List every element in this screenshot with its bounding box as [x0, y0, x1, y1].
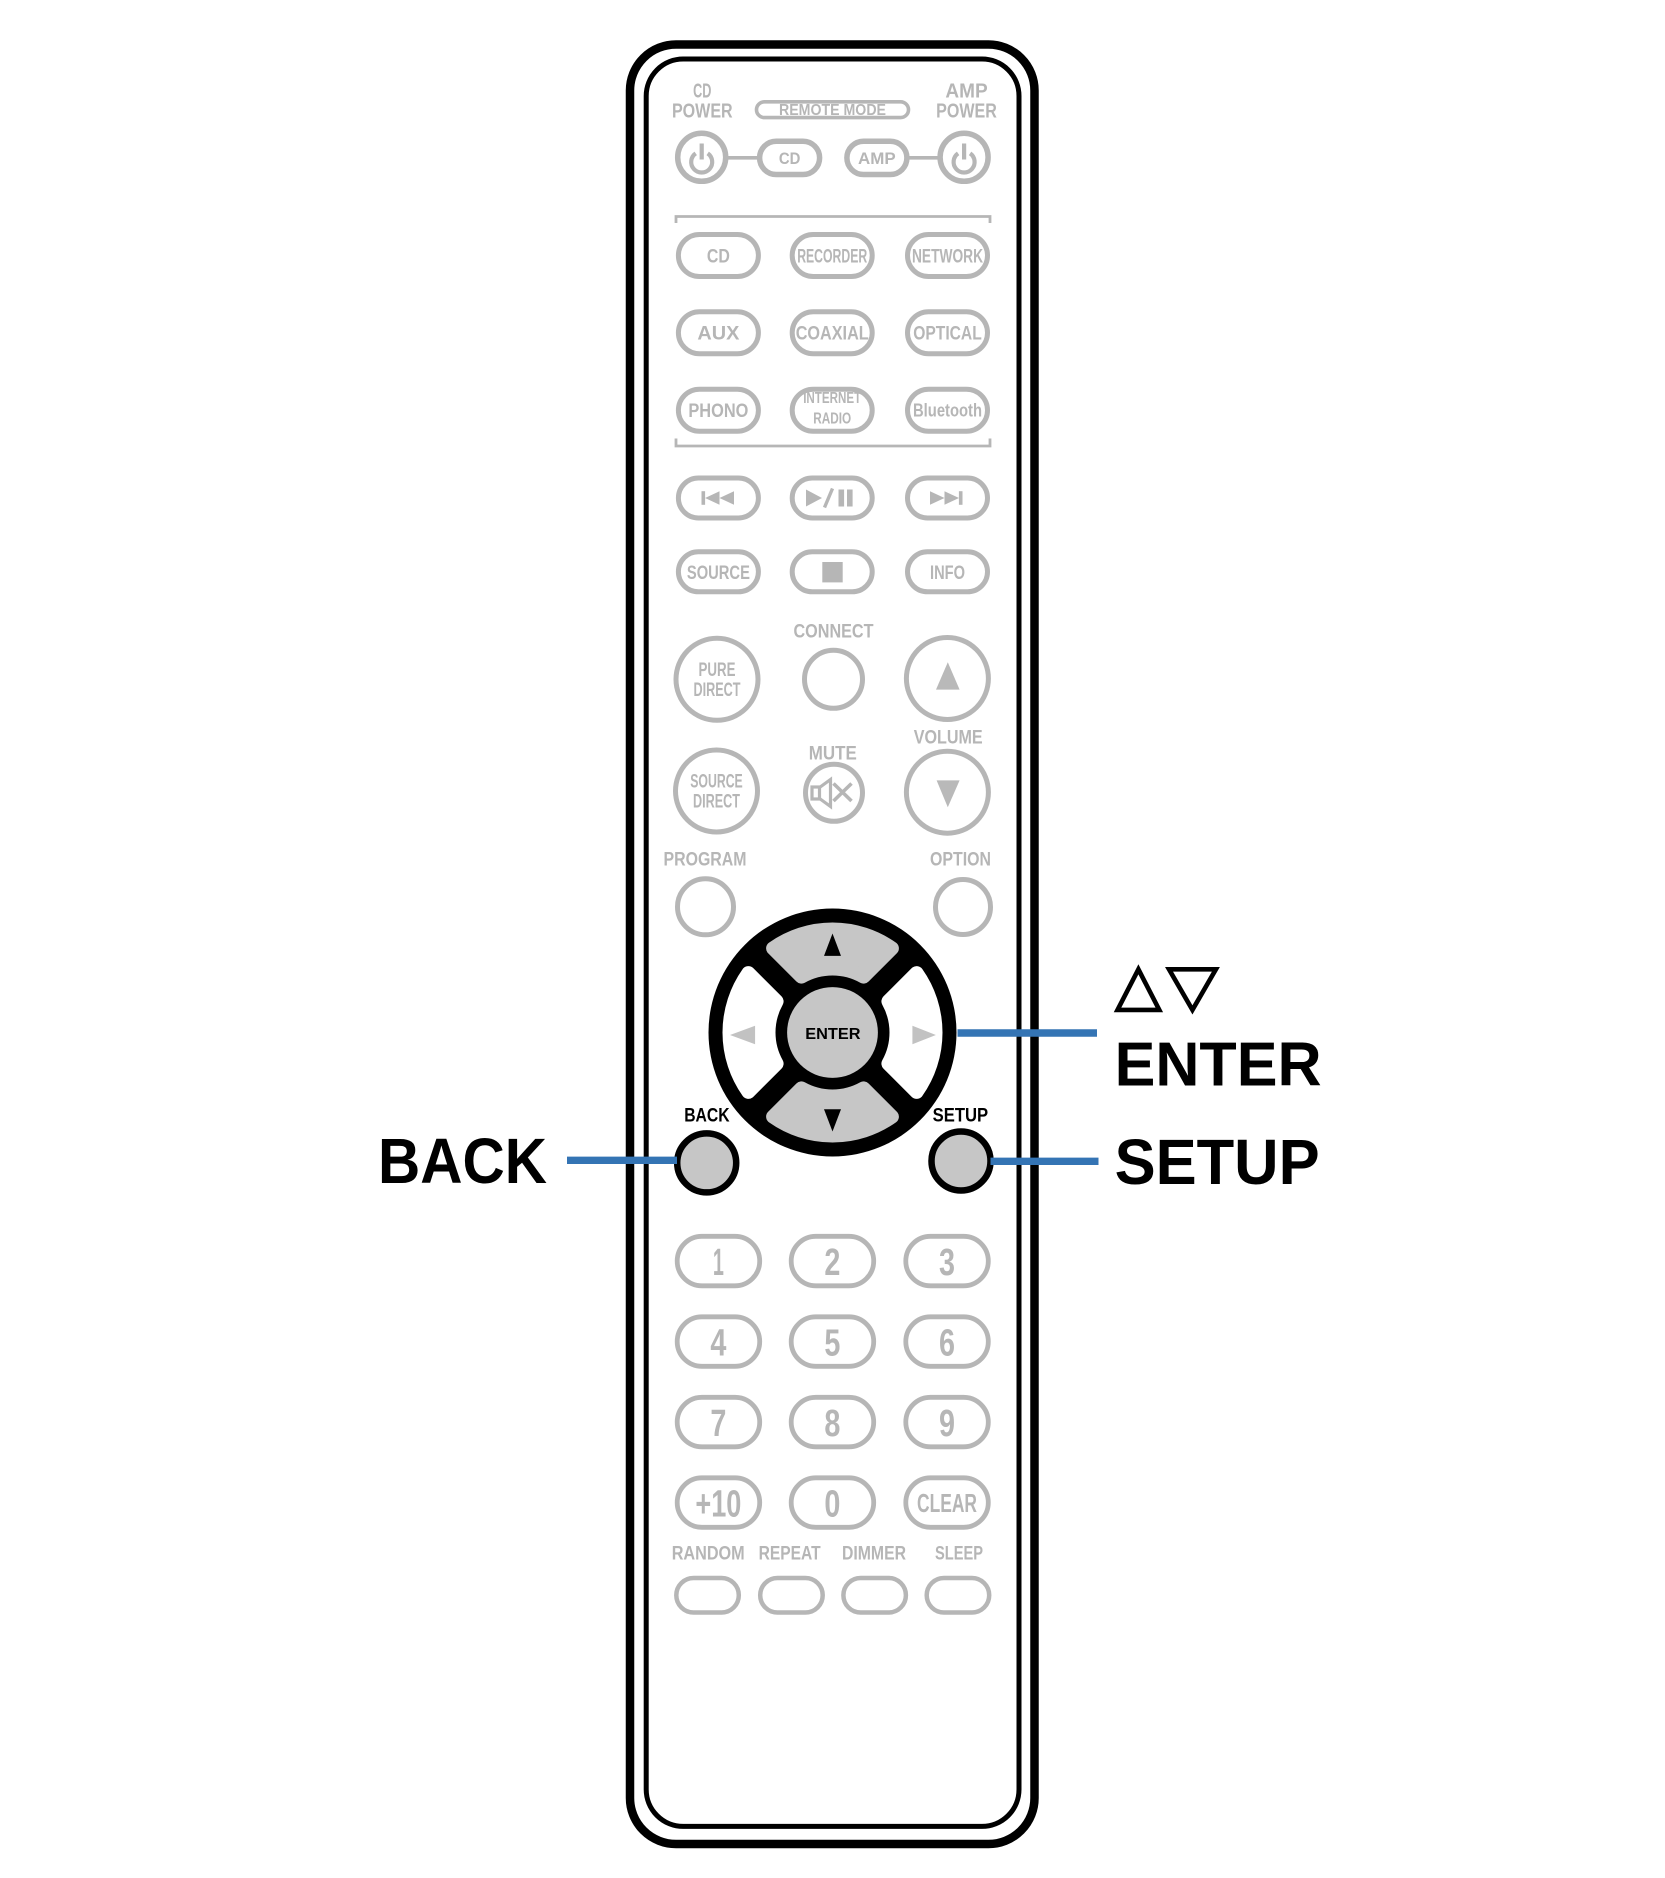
svg-text:SETUP: SETUP — [1115, 1126, 1320, 1198]
svg-text:8: 8 — [824, 1403, 840, 1445]
svg-text:PHONO: PHONO — [688, 400, 748, 422]
svg-text:INFO: INFO — [930, 562, 965, 584]
svg-text:6: 6 — [939, 1323, 955, 1365]
svg-text:POWER: POWER — [936, 99, 997, 122]
svg-text:SLEEP: SLEEP — [935, 1542, 983, 1564]
svg-text:POWER: POWER — [672, 99, 733, 122]
svg-text:CD: CD — [779, 150, 801, 168]
svg-text:REMOTE MODE: REMOTE MODE — [779, 102, 886, 119]
svg-text:CD: CD — [707, 246, 730, 268]
svg-text:VOLUME: VOLUME — [914, 726, 983, 748]
svg-text:0: 0 — [824, 1484, 840, 1526]
svg-text:Bluetooth: Bluetooth — [913, 401, 982, 421]
svg-text:SOURCE: SOURCE — [690, 771, 743, 793]
svg-text:SOURCE: SOURCE — [687, 562, 750, 584]
svg-text:7: 7 — [710, 1403, 726, 1445]
svg-text:INTERNET: INTERNET — [803, 390, 861, 407]
svg-text:PURE: PURE — [699, 659, 736, 681]
svg-text:DIRECT: DIRECT — [694, 679, 741, 701]
svg-text:AMP: AMP — [858, 150, 896, 168]
svg-text:2: 2 — [824, 1242, 840, 1284]
svg-text:MUTE: MUTE — [809, 742, 857, 764]
svg-text:BACK: BACK — [378, 1125, 547, 1197]
svg-text:OPTION: OPTION — [930, 849, 991, 871]
svg-text:3: 3 — [939, 1242, 955, 1284]
svg-text:CONNECT: CONNECT — [794, 621, 874, 643]
svg-text:SETUP: SETUP — [933, 1104, 989, 1126]
svg-text:REPEAT: REPEAT — [759, 1542, 821, 1564]
svg-text:+10: +10 — [695, 1484, 741, 1526]
svg-text:DIMMER: DIMMER — [842, 1542, 906, 1564]
svg-text:DIRECT: DIRECT — [693, 791, 740, 813]
svg-text:ENTER: ENTER — [805, 1026, 861, 1043]
svg-text:OPTICAL: OPTICAL — [913, 323, 982, 345]
svg-text:RADIO: RADIO — [813, 410, 851, 427]
svg-text:9: 9 — [939, 1403, 955, 1445]
svg-text:5: 5 — [824, 1323, 840, 1365]
svg-text:CLEAR: CLEAR — [917, 1488, 977, 1518]
svg-text:PROGRAM: PROGRAM — [664, 849, 747, 871]
svg-text:AUX: AUX — [697, 323, 739, 345]
svg-text:1: 1 — [713, 1242, 724, 1284]
svg-text:RECORDER: RECORDER — [797, 246, 867, 268]
svg-text:ENTER: ENTER — [1115, 1031, 1322, 1100]
svg-text:RANDOM: RANDOM — [672, 1542, 745, 1564]
svg-text:BACK: BACK — [684, 1104, 729, 1126]
svg-text:COAXIAL: COAXIAL — [796, 323, 869, 345]
svg-text:4: 4 — [710, 1323, 726, 1365]
svg-text:NETWORK: NETWORK — [912, 246, 983, 268]
